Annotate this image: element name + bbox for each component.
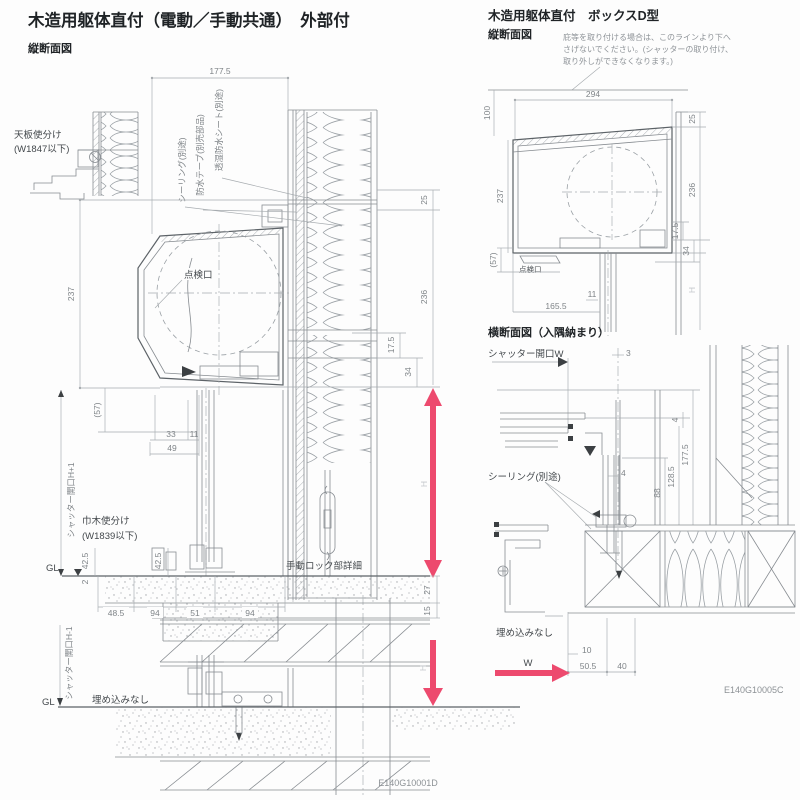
boxd-dim-237: 237 (495, 189, 505, 203)
cross-w-label: W (524, 658, 533, 669)
waterproof-tape-label: 防水テープ(別売部品) (195, 114, 205, 196)
cross-dim-128-5: 128.5 (666, 466, 676, 488)
gl-label-bottom: GL (42, 697, 55, 708)
shutter-opening-w-label: シャッター開口W (488, 349, 564, 360)
main-title: 木造用躯体直付（電動／手動共通） 外部付 (27, 10, 350, 30)
shutter-opening-h-minus-label: シャッター開口H-1 (64, 626, 74, 699)
cross-section-drawing: 横断面図（入隅納まり） シャッター開口W 3 (488, 325, 795, 695)
tenban-sub-label: (W1847以下) (14, 144, 69, 155)
manual-lock-label: 手動ロック部詳細 (286, 560, 362, 572)
bottom-variant-drawing: シャッター開口H-1 GL 埋め込みなし H E140G10001D (42, 625, 520, 790)
cross-sealing-label: シーリング(別途) (488, 471, 561, 483)
dim-17-5: 17.5 (386, 336, 396, 353)
boxd-dim-34: 34 (681, 246, 691, 256)
no-embed-label-cross: 埋め込みなし (496, 628, 553, 639)
dim-27: 27 (422, 585, 432, 595)
cross-dim-4b: 4 (621, 468, 626, 478)
note-line-1: 庇等を取り付ける場合は、このラインより下へ (563, 32, 731, 42)
boxd-dim-236: 236 (687, 183, 697, 197)
note-line-3: 取り外しができなくなります。) (563, 56, 673, 66)
height-double-arrow: H (419, 388, 442, 578)
dim-94-a: 94 (150, 608, 160, 618)
cross-dim-177-5: 177.5 (680, 444, 690, 466)
boxd-title: 木造用躯体直付 ボックスD型 (487, 8, 660, 23)
dim-51: 51 (190, 608, 200, 618)
cross-dim-40: 40 (617, 661, 627, 671)
cross-dim-10: 10 (582, 645, 592, 655)
dim-237: 237 (66, 287, 76, 301)
cross-dim-88: 88 (652, 488, 662, 498)
dim-177-5: 177.5 (209, 66, 231, 76)
boxd-case: 点検口 (513, 127, 672, 274)
dim-33: 33 (166, 429, 176, 439)
dim-2: 2 (80, 579, 90, 584)
no-embed-label-main: 埋め込みなし (92, 695, 149, 706)
boxd-inspection-label: 点検口 (519, 264, 542, 274)
boxd-dim-57: (57) (488, 252, 498, 267)
no-embed-leg: 埋め込みなし (494, 522, 563, 639)
cross-dim-3: 3 (626, 348, 631, 358)
baseboard-label: 巾木使分け (82, 515, 130, 527)
boxd-dim-165-5: 165.5 (545, 301, 567, 311)
boxd-view-label: 縦断面図 (488, 27, 532, 41)
main-section-drawing: 天板使分け (W1847以下) (14, 66, 442, 795)
dim-h-bottom: H (418, 665, 428, 671)
drawing-sheet: 木造用躯体直付（電動／手動共通） 外部付 縦断面図 木造用躯体直付 ボックスD型… (0, 0, 800, 800)
width-right-arrow (495, 664, 570, 682)
boxd-dim-11: 11 (588, 289, 597, 299)
main-view-label: 縦断面図 (28, 41, 72, 55)
dim-h-main: H (419, 481, 429, 487)
cross-dim-4a: 4 (670, 417, 680, 422)
boxd-dim-25: 25 (687, 114, 697, 124)
boxd-drawing: 庇等を取り付ける場合は、このラインより下へ さげないでください。(シャッターの取… (482, 32, 733, 336)
inspection-port-label: 点検口 (184, 269, 213, 281)
top-plate-detail: 天板使分け (W1847以下) (14, 112, 138, 199)
dims-baseboard: 巾木使分け (W1839以下) 42.5 42.5 2 (80, 515, 168, 584)
moisture-sheet-label: 透湿防水シート(別途) (214, 89, 224, 171)
baseboard-sub-label: (W1839以下) (82, 531, 137, 542)
dim-42-5-a: 42.5 (80, 552, 90, 569)
dim-11: 11 (190, 429, 199, 439)
tenban-label: 天板使分け (14, 129, 62, 141)
shutter-opening-h-label: シャッター開口H+1 (66, 462, 76, 538)
sealing-label: シーリング(別途) (177, 137, 187, 202)
dims-rail: 33 11 49 (150, 395, 199, 456)
cad-drawing: 木造用躯体直付（電動／手動共通） 外部付 縦断面図 木造用躯体直付 ボックスD型… (0, 0, 800, 800)
cross-rail (592, 455, 636, 527)
corner-wall-pieces (500, 413, 602, 456)
boxd-dim-17-5: 17.5 (670, 222, 680, 239)
dim-42-5-b: 42.5 (153, 552, 163, 569)
dim-34: 34 (403, 367, 413, 377)
gl-label-main: GL (46, 563, 59, 574)
height-down-arrow: H (418, 640, 443, 706)
plan-wall-vertical (710, 345, 788, 525)
dim-57: (57) (92, 402, 102, 417)
boxd-rails (600, 250, 616, 336)
boxd-dim-h: H (687, 287, 697, 293)
dim-236: 236 (419, 290, 429, 304)
note-line-2: さげないでください。(シャッターの取り付け、 (563, 44, 733, 54)
cross-dims-right: 4 177.5 128.5 88 (585, 390, 693, 525)
shutter-box: 点検口 (138, 224, 290, 395)
cross-dims-bottom: 10 50.5 40 W (495, 612, 636, 682)
dim-15: 15 (422, 606, 432, 616)
plan-wall-band (568, 525, 795, 613)
dim-100: 100 (482, 106, 492, 120)
dim-48-5: 48.5 (108, 608, 125, 618)
cross-title: 横断面図（入隅納まり） (488, 325, 609, 339)
drawing-code-main: E140G10001D (378, 778, 438, 788)
cross-dim-50-5: 50.5 (580, 661, 597, 671)
dim-49: 49 (167, 443, 177, 453)
dim-294: 294 (586, 89, 600, 99)
guide-rails (152, 388, 288, 576)
dim-94-b: 94 (245, 608, 255, 618)
drawing-code-cross: E140G10005C (724, 685, 784, 695)
dim-25: 25 (419, 195, 429, 205)
foundation (336, 595, 390, 795)
